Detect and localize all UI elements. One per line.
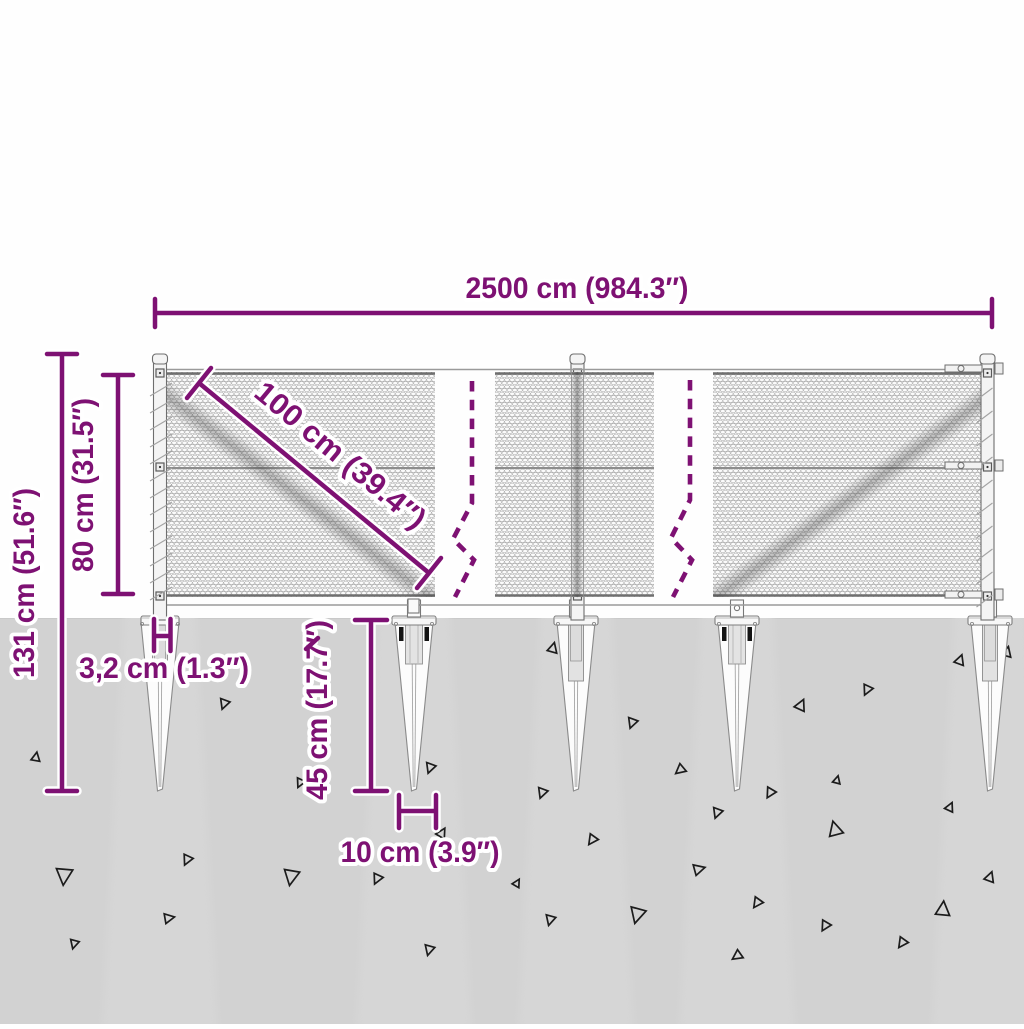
- svg-text:131 cm (51.6″): 131 cm (51.6″): [8, 488, 41, 678]
- svg-text:2500 cm (984.3″): 2500 cm (984.3″): [466, 272, 689, 305]
- svg-text:3,2 cm (1.3″): 3,2 cm (1.3″): [79, 652, 249, 685]
- svg-text:80 cm (31.5″): 80 cm (31.5″): [67, 398, 100, 572]
- svg-text:10 cm (3.9″): 10 cm (3.9″): [341, 836, 500, 869]
